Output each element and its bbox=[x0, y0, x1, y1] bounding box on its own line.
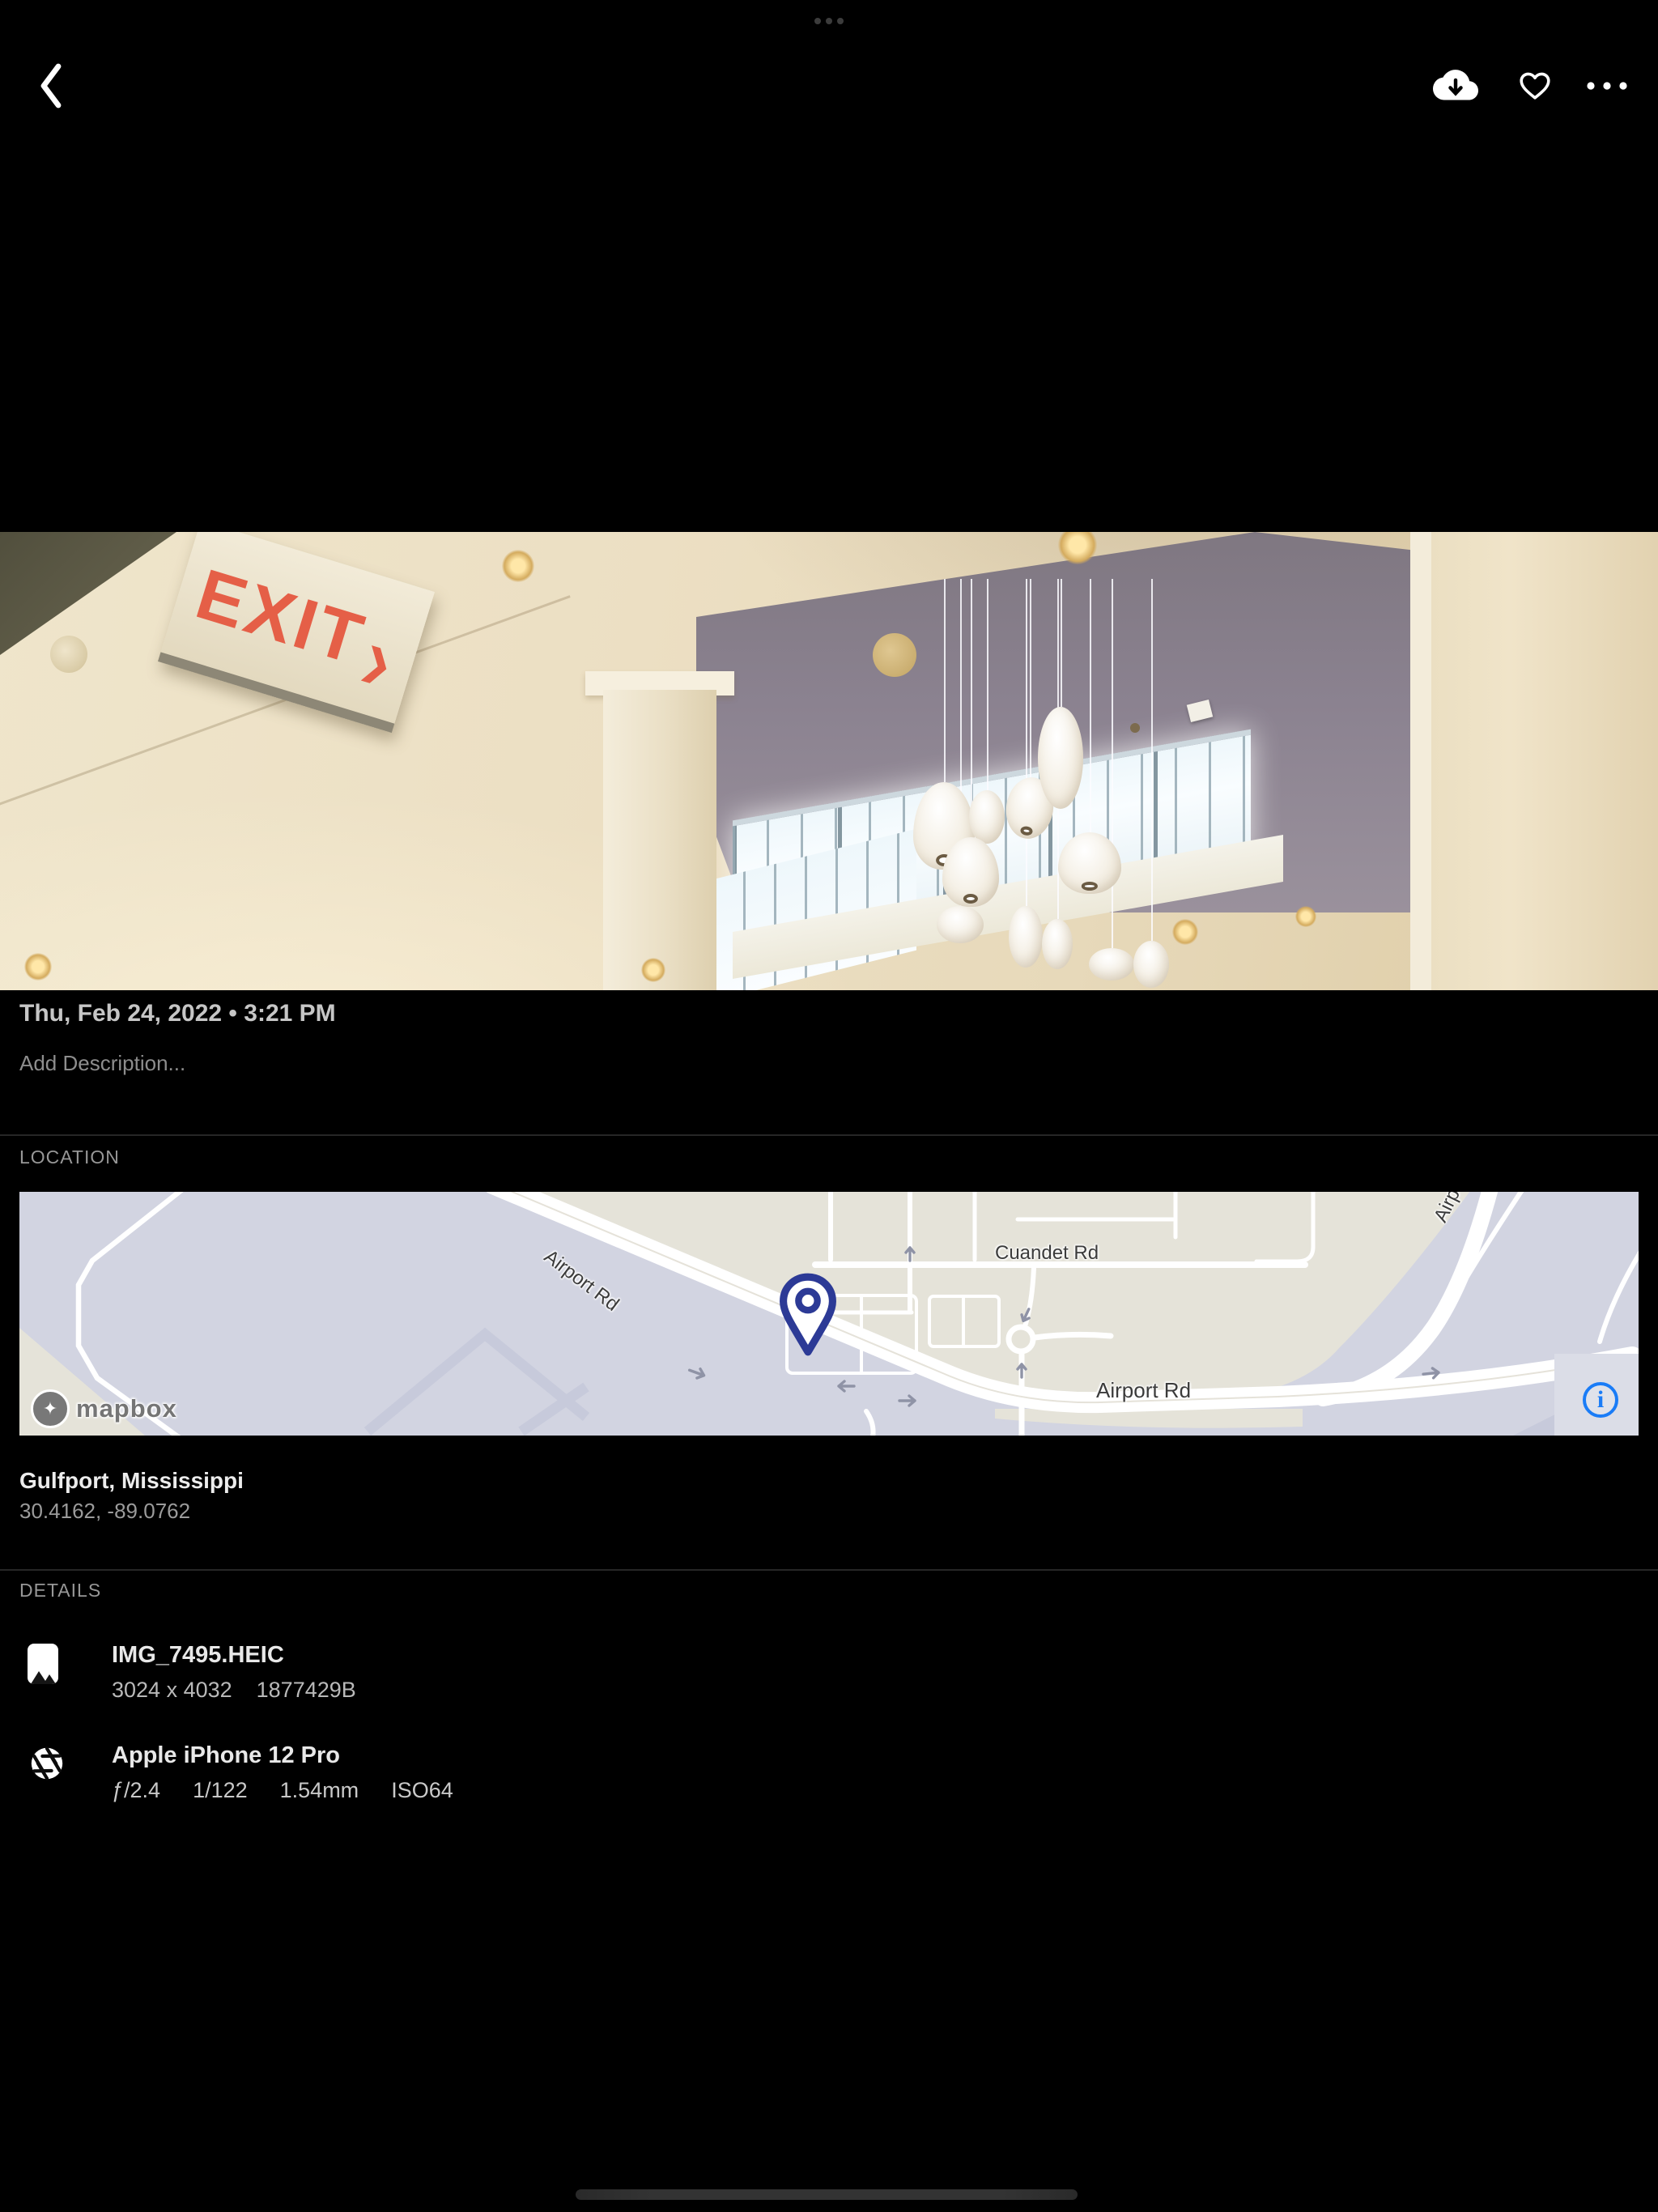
divider bbox=[0, 1569, 1658, 1571]
photo-smoke-detector bbox=[50, 636, 87, 673]
location-map[interactable]: Airport Rd Airport Rd Cuandet Rd Airpo C… bbox=[19, 1192, 1639, 1436]
aperture-icon bbox=[28, 1744, 66, 1783]
lamp-cord bbox=[1151, 579, 1153, 941]
favorite-button[interactable] bbox=[1516, 66, 1554, 105]
lamp-cord bbox=[987, 579, 988, 790]
exit-sign-text: EXIT bbox=[189, 558, 373, 676]
pendant-lamp bbox=[969, 790, 1005, 844]
photo-viewer[interactable]: EXIT ❯ bbox=[0, 532, 1658, 990]
lamp-cord bbox=[1090, 579, 1091, 832]
lamp-cord bbox=[944, 579, 946, 782]
handle-dot bbox=[837, 18, 844, 24]
photo-ceiling-medallion bbox=[873, 633, 916, 677]
exif-shutter: 1/122 bbox=[193, 1778, 248, 1802]
home-indicator[interactable] bbox=[576, 2189, 1078, 2200]
divider bbox=[0, 1134, 1658, 1136]
pendant-lamp bbox=[1042, 919, 1073, 969]
mapbox-icon: ✦ bbox=[31, 1389, 70, 1428]
exif-aperture: ƒ/2.4 bbox=[112, 1778, 160, 1802]
map-pin-icon bbox=[777, 1273, 839, 1357]
exif-focal-length: 1.54mm bbox=[280, 1778, 359, 1802]
photo-wall-edge bbox=[1410, 532, 1433, 990]
file-dimensions: 3024 x 4032 bbox=[112, 1678, 232, 1702]
lamp-cord bbox=[1026, 579, 1027, 906]
back-button[interactable] bbox=[32, 62, 70, 110]
pendant-lamp bbox=[1009, 906, 1043, 968]
photo-detail-screen: EXIT ❯ bbox=[0, 0, 1658, 2212]
ceiling-light bbox=[502, 550, 534, 582]
exif-iso: ISO64 bbox=[391, 1778, 453, 1802]
mapbox-logo[interactable]: ✦ mapbox bbox=[31, 1389, 177, 1428]
file-meta: 3024 x 40321877429B bbox=[112, 1678, 380, 1703]
download-button[interactable] bbox=[1433, 65, 1478, 107]
location-section-label: LOCATION bbox=[19, 1146, 120, 1168]
add-description-field[interactable]: Add Description... bbox=[19, 1051, 185, 1076]
map-label-airport-rd: Airport Rd bbox=[1096, 1378, 1191, 1403]
mapbox-wordmark: mapbox bbox=[76, 1394, 177, 1423]
ellipsis-icon bbox=[1584, 79, 1630, 92]
photo-datetime: Thu, Feb 24, 2022 • 3:21 PM bbox=[19, 1000, 336, 1027]
pendant-lamp-cigar bbox=[1038, 707, 1083, 809]
ceiling-light bbox=[24, 953, 52, 981]
handle-dot bbox=[814, 18, 821, 24]
file-name: IMG_7495.HEIC bbox=[112, 1642, 284, 1669]
pendant-lamp bbox=[1133, 941, 1169, 988]
lamp-cord bbox=[971, 579, 972, 837]
details-section-label: DETAILS bbox=[19, 1580, 101, 1602]
ceiling-light bbox=[1295, 906, 1316, 927]
image-file-icon bbox=[28, 1644, 58, 1684]
chevron-left-icon bbox=[32, 62, 70, 110]
exit-sign-arrow: ❯ bbox=[357, 639, 397, 687]
cloud-download-icon bbox=[1433, 65, 1478, 107]
pendant-lamp bbox=[1089, 948, 1134, 981]
ceiling-light bbox=[641, 958, 665, 982]
pendant-lamp bbox=[937, 906, 984, 943]
more-button[interactable] bbox=[1584, 79, 1630, 92]
lamp-cord bbox=[1112, 579, 1113, 948]
camera-exif: ƒ/2.41/1221.54mmISO64 bbox=[112, 1778, 486, 1803]
ceiling-light bbox=[1172, 919, 1198, 945]
map-label-cuandet-rd: Cuandet Rd bbox=[995, 1242, 1099, 1265]
photo-ceiling-sensor bbox=[1130, 723, 1140, 733]
photo-right-wall bbox=[1431, 532, 1658, 990]
lamp-cord bbox=[1061, 579, 1062, 707]
location-coordinates: 30.4162, -89.0762 bbox=[19, 1499, 190, 1524]
photo-pillar bbox=[603, 690, 716, 990]
heart-icon bbox=[1516, 66, 1554, 105]
map-info-button[interactable]: i bbox=[1583, 1382, 1618, 1418]
camera-name: Apple iPhone 12 Pro bbox=[112, 1742, 340, 1769]
handle-dot bbox=[826, 18, 832, 24]
location-place: Gulfport, Mississippi bbox=[19, 1468, 244, 1494]
lamp-cord bbox=[1030, 579, 1031, 777]
file-size: 1877429B bbox=[257, 1678, 356, 1702]
